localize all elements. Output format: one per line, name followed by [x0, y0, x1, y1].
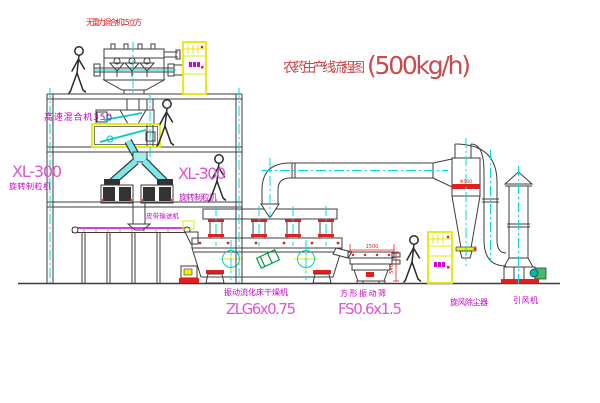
- digital-display: [189, 62, 200, 67]
- flow-diagram: 农药生产线流程图 (500kg/h) 无重力混合机1.5 立方 高速混合机350…: [0, 0, 600, 403]
- digital-display: [434, 262, 445, 267]
- screen-length-dim: 1500: [366, 244, 379, 250]
- green-plate: [257, 250, 280, 268]
- cyclone-dim: Φ500: [460, 179, 472, 185]
- granulator-right-name: 旋转制粒机: [179, 192, 217, 202]
- granulator-right: [141, 179, 173, 203]
- screen-model-label: FS0.6x1.5: [338, 300, 402, 318]
- person-ground: [404, 236, 421, 282]
- induced-draft-fan: [501, 258, 546, 284]
- cad-drawing: 农药生产线流程图 (500kg/h) 无重力混合机1.5 立方 高速混合机350…: [0, 0, 600, 403]
- belt-conveyor-label: 皮带输送机: [146, 211, 180, 220]
- screen-name-label: 方形振动筛: [340, 288, 386, 298]
- cyclone-name-label: 旋风除尘器: [450, 297, 488, 307]
- screen-height-dim: 540: [389, 264, 395, 274]
- granulator-right-model: XL-300: [178, 164, 226, 183]
- page-title: 农药生产线流程图: [283, 60, 365, 76]
- granulator-left-model: XL-300: [12, 162, 62, 181]
- text-labels: 农药生产线流程图 (500kg/h) 无重力混合机1.5 立方 高速混合机350…: [9, 17, 538, 318]
- dryer-name-label: 振动流化床干燥机: [224, 287, 288, 297]
- page-title-capacity: (500kg/h): [367, 51, 471, 80]
- gravity-mixer: [94, 44, 183, 94]
- granulator-left: [101, 179, 133, 203]
- fan-name-label: 引风机: [513, 295, 538, 305]
- dust-downpipe: [482, 172, 506, 266]
- exhaust-pipe: [262, 163, 433, 204]
- dryer-model-label: ZLG6x0.75: [226, 300, 296, 318]
- granulator-left-name: 旋转制粒机: [9, 181, 51, 191]
- person-roof: [69, 47, 86, 93]
- high-speed-mixer-label: 高速混合机350: [44, 111, 112, 123]
- control-cabinet-1: [183, 42, 206, 94]
- control-cabinet-2: [428, 232, 452, 283]
- gravity-mixer-label: 无重力混合机1.5 立方: [86, 17, 142, 27]
